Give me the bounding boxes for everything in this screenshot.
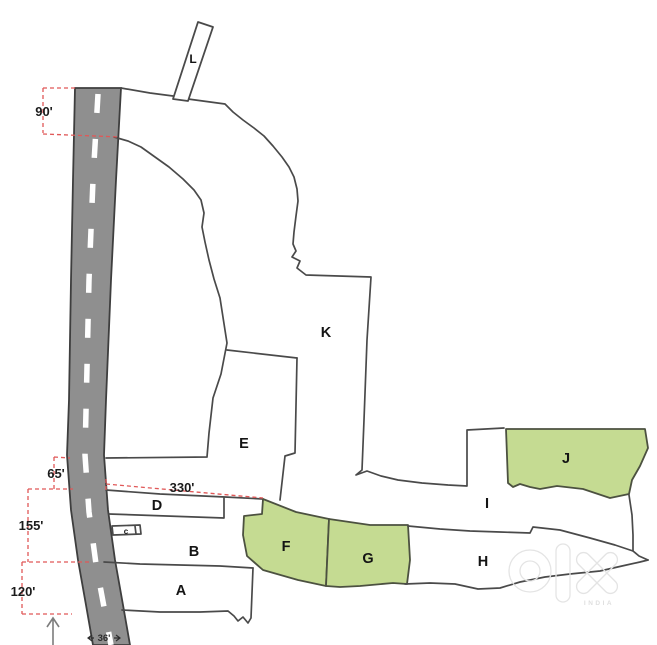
plot-j-region	[506, 429, 648, 498]
boundary-plot-e-right	[280, 358, 297, 500]
watermark-india-label: INDIA	[584, 600, 614, 607]
boundary-plot-h-top	[408, 526, 633, 551]
plot-label-d: D	[152, 498, 162, 514]
watermark-l	[556, 544, 570, 602]
plot-label-e: E	[239, 436, 249, 452]
plot-label-j: J	[562, 451, 570, 467]
dim-label-65: 65'	[47, 466, 65, 481]
plot-label-g: G	[362, 551, 373, 567]
dim-label-90: 90'	[35, 104, 53, 119]
boundary-outer-and-plot-k	[121, 88, 504, 486]
plot-label-a: A	[176, 583, 187, 599]
dimension-lines-red	[22, 88, 263, 614]
olx-watermark: INDIA	[509, 544, 620, 607]
up-arrow-icon	[47, 618, 59, 645]
road	[67, 88, 130, 645]
survey-map-svg: 90' 65' 155' 120' 330' 36' L K E D c B A…	[0, 0, 657, 645]
plot-label-k: K	[321, 325, 332, 341]
watermark-o-inner	[520, 561, 540, 581]
plot-label-c: c	[124, 527, 129, 536]
road-width-label: 36'	[98, 633, 111, 644]
plot-label-i: I	[485, 496, 489, 512]
boundary-plot-c-divider	[135, 526, 136, 534]
boundary-plot-e-top	[227, 350, 297, 358]
boundary-plot-b-bottom	[104, 562, 253, 568]
boundary-plot-d-bottom	[109, 498, 224, 518]
dim-label-120: 120'	[11, 584, 36, 599]
plot-label-l: L	[189, 52, 196, 66]
boundary-plot-a	[122, 568, 253, 623]
plot-label-f: F	[282, 539, 291, 555]
watermark-o-outer	[509, 550, 551, 592]
plot-map-image: 90' 65' 155' 120' 330' 36' L K E D c B A…	[0, 0, 657, 645]
dim-label-330: 330'	[170, 480, 195, 495]
plot-label-b: B	[189, 544, 199, 560]
boundary-bottom-outer	[405, 560, 648, 589]
plot-label-h: H	[478, 554, 488, 570]
dim-label-155: 155'	[19, 518, 44, 533]
boundary-big-plot	[106, 137, 227, 458]
